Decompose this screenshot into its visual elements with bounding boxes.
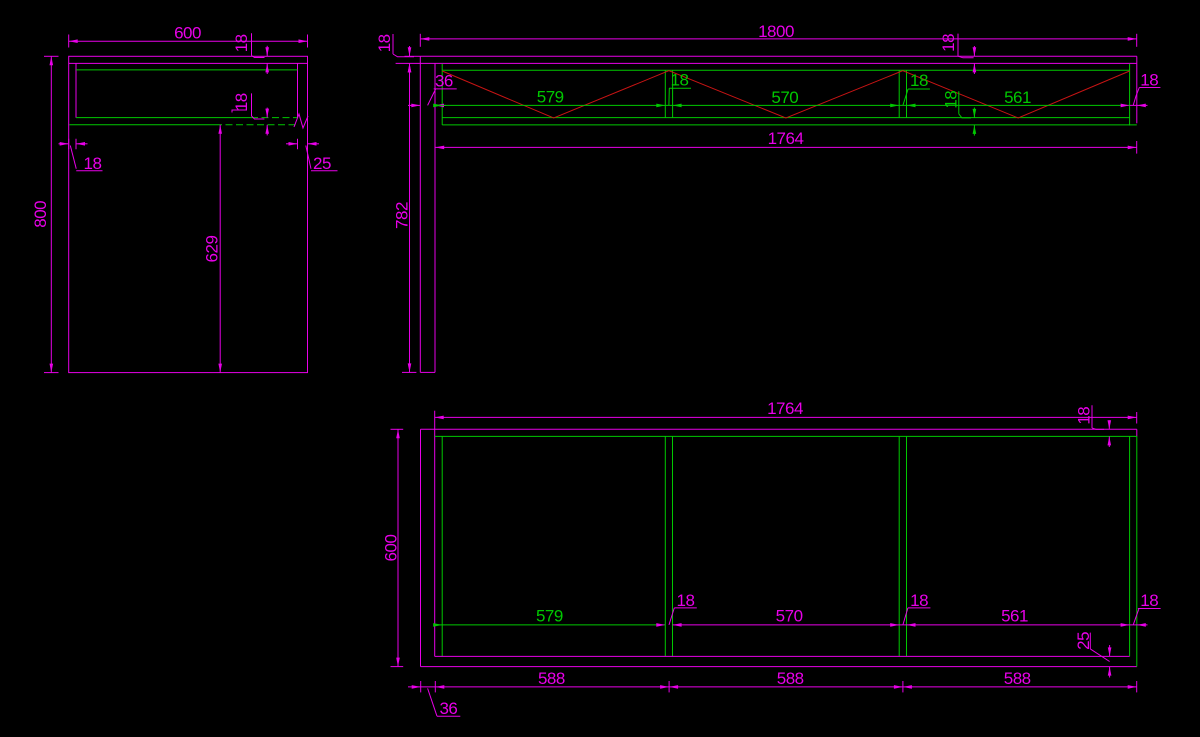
svg-text:800: 800 [31,201,50,228]
svg-text:18: 18 [84,154,102,173]
svg-text:570: 570 [771,88,798,107]
svg-text:18: 18 [939,34,958,52]
svg-text:588: 588 [1004,669,1031,688]
svg-text:600: 600 [382,535,401,562]
svg-text:18: 18 [910,71,928,90]
svg-text:1764: 1764 [767,399,803,418]
svg-text:18: 18 [1140,70,1158,89]
svg-text:579: 579 [537,87,564,106]
svg-text:570: 570 [776,606,803,625]
svg-text:18: 18 [1074,407,1093,425]
svg-text:36: 36 [439,699,457,718]
svg-text:36: 36 [435,72,453,91]
svg-text:579: 579 [536,606,563,625]
svg-text:18: 18 [232,34,251,52]
svg-text:629: 629 [203,236,222,263]
svg-text:561: 561 [1001,606,1028,625]
svg-text:588: 588 [777,669,804,688]
svg-text:18: 18 [941,91,960,109]
svg-text:18: 18 [677,591,695,610]
svg-text:600: 600 [174,23,201,42]
svg-text:18: 18 [1140,591,1158,610]
svg-text:782: 782 [392,202,411,229]
svg-text:1764: 1764 [768,129,804,148]
svg-text:588: 588 [538,669,565,688]
svg-text:1800: 1800 [758,22,794,41]
svg-text:25: 25 [313,154,331,173]
svg-text:18: 18 [671,71,689,90]
svg-text:18: 18 [375,34,394,52]
svg-text:18: 18 [232,93,251,111]
svg-text:561: 561 [1004,88,1031,107]
svg-text:18: 18 [910,591,928,610]
